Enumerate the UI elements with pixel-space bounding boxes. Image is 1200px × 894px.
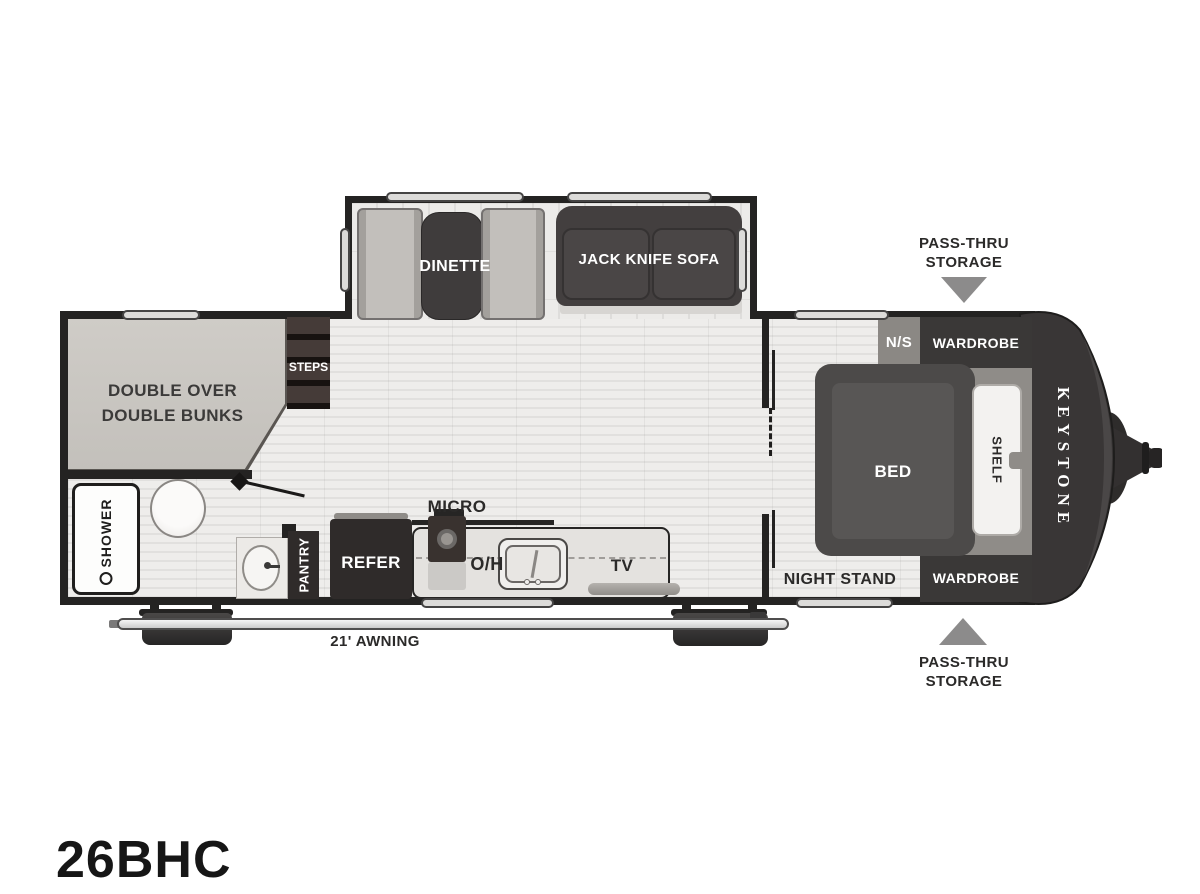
hitch-ridge [1142, 442, 1149, 474]
awning-rail [117, 618, 789, 630]
floorplan-canvas: KEYSTONE DINETTE JACK KNIFE SOFA DOUBLE … [0, 0, 1200, 894]
wardrobe-bottom-label: WARDROBE [920, 570, 1032, 586]
shelf: SHELF [972, 384, 1022, 536]
slide-window-top-right [567, 192, 712, 202]
window-rear-top [122, 310, 200, 320]
shower-drain [100, 572, 113, 585]
faucet-handle-left [524, 579, 530, 585]
shelf-label: SHELF [990, 436, 1005, 484]
bunks-label: DOUBLE OVER DOUBLE BUNKS [75, 378, 270, 428]
bath-sink-bowl [242, 545, 280, 591]
night-stand-label: NIGHT STAND [775, 571, 905, 589]
wardrobe-top-label: WARDROBE [920, 335, 1032, 351]
tv-shape [588, 583, 680, 595]
faucet-handle-right [535, 579, 541, 585]
dinette-label: DINETTE [395, 258, 515, 276]
hitch-tip [1149, 448, 1162, 468]
bedroom-wall-top [762, 319, 769, 408]
front-cap [1012, 300, 1162, 615]
sofa-label: JACK KNIFE SOFA [556, 251, 742, 268]
pass-thru-top-label: PASS-THRU STORAGE [898, 234, 1030, 272]
bath-vanity [236, 537, 288, 599]
overhead-label: O/H [455, 554, 519, 575]
tv-label: TV [600, 556, 644, 576]
refer-label: REFER [330, 553, 412, 573]
bedroom-wall-bottom-inner [772, 510, 775, 568]
slide-window-left [340, 228, 350, 292]
arrow-up-icon [939, 618, 987, 645]
shower-pan: SHOWER [72, 483, 140, 595]
toilet [150, 479, 206, 538]
bed-mattress [832, 383, 954, 539]
pantry: PANTRY [288, 531, 319, 599]
arrow-down-icon [941, 277, 987, 303]
bed-label: BED [832, 462, 954, 482]
shower-label: SHOWER [98, 498, 114, 567]
slide-window-top-left [386, 192, 524, 202]
bedroom-curtain-dashed [769, 408, 772, 456]
awning-label: 21' AWNING [300, 633, 450, 650]
bedroom-wall-top-inner [772, 350, 775, 410]
shelf-notch [1009, 452, 1022, 469]
steps-label: STEPS [285, 361, 332, 375]
model-name: 26BHC [56, 830, 232, 890]
window-kitchen-bottom [421, 598, 554, 608]
micro-label: MICRO [412, 497, 502, 517]
burner [437, 529, 457, 549]
bath-faucet-dot [264, 562, 271, 569]
brand-label: KEYSTONE [1051, 333, 1073, 583]
pass-thru-bottom-label: PASS-THRU STORAGE [898, 653, 1030, 691]
window-bedroom-bottom [796, 598, 893, 608]
window-bedroom-top [794, 310, 889, 320]
ns-label: N/S [878, 334, 920, 351]
bathroom-wall [60, 470, 252, 479]
bedroom-wall-bottom [762, 514, 769, 599]
pantry-label: PANTRY [296, 538, 311, 593]
